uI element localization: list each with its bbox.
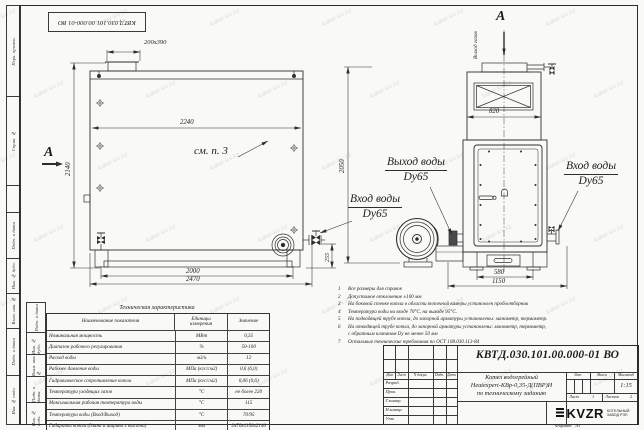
col-podp: Подп.: [433, 374, 446, 378]
row-value: 2470х1150х2140: [228, 421, 269, 430]
note-text: Все размеры для справок: [348, 286, 402, 292]
note-line: с обратным клапаном Dу не менее 50 мм: [338, 331, 552, 339]
scale-value: 1:15: [614, 383, 638, 389]
front-view: [449, 30, 559, 272]
table-row: Рабочее давление водыМПа (кгс/см2)0,6 (6…: [47, 364, 269, 375]
row-name: Рабочее давление воды: [47, 365, 176, 375]
dim-top-width: 820: [489, 109, 499, 116]
table-row: Температура воды (Вход/Выход)°С70/95: [47, 409, 269, 420]
note-text: с обратным клапаном Dу не менее 50 мм: [348, 331, 438, 337]
logo-caption2: ЗАВОД РЭП: [607, 413, 630, 417]
target-mark-icon: [96, 99, 298, 234]
dim-total-width: 1150: [492, 279, 505, 286]
dim-chimney: 200x390: [144, 40, 166, 47]
row-units: %: [176, 342, 229, 352]
note-text: На отводящей трубе котла, до запорной ар…: [348, 324, 546, 330]
table-row: Габариты котла (длина и ширина х высота)…: [47, 420, 269, 430]
tech-table: Наименование показателя Единицыизмерения…: [46, 313, 270, 430]
role-label: Утв.: [386, 417, 395, 421]
note-text: Допустимое отклонение ±100 мм: [348, 294, 422, 300]
row-value: 0,06 (0,6): [228, 376, 269, 386]
side-view: [84, 62, 325, 267]
water-out-line2: Dy65: [385, 172, 447, 184]
row-value: не более 220: [228, 387, 269, 397]
note-line: 1Все размеры для справок: [338, 286, 552, 294]
door-handle-icon: [479, 196, 496, 199]
note-number: 1: [338, 286, 348, 292]
valve-icon: [527, 63, 556, 75]
note-number: 7: [338, 339, 348, 345]
role-label: Разраб.: [386, 381, 400, 385]
row-name: Габариты котла (длина и ширина х высота): [47, 421, 176, 430]
hatched-panel: [474, 83, 533, 110]
water-in-left-label: Вход воды Dy65: [348, 194, 402, 220]
format-strip: Формат А3: [555, 424, 580, 429]
section-label-top: А: [496, 10, 505, 24]
row-value: 0,35: [228, 331, 269, 341]
water-in-right-line2: Dy65: [564, 176, 618, 188]
dim-front-height: 2050: [340, 159, 347, 173]
note-number: 3: [338, 301, 348, 307]
water-out-line1: Выход воды: [385, 157, 447, 171]
table-row: Диапазон рабочего регулирования%50-100: [47, 341, 269, 352]
water-in-left-line1: Вход воды: [348, 194, 402, 208]
water-in-right-line1: Вход воды: [564, 161, 618, 175]
table-row: Гидравлическое сопротивление котлаМПа (к…: [47, 375, 269, 386]
col-header-value: Значение: [228, 314, 269, 330]
boiler-door: [474, 145, 542, 246]
dim-pipe-height: 255: [325, 253, 331, 262]
table-row: Расход водым3/ч12: [47, 353, 269, 364]
sheets-value: 2: [630, 395, 632, 399]
dim-body-width: 2240: [180, 120, 194, 127]
row-units: МВт: [176, 331, 229, 341]
note-number: 5: [338, 316, 348, 322]
table-row: Номинальная мощностьМВт0,35: [47, 330, 269, 341]
note-line: 2Допустимое отклонение ±100 мм: [338, 294, 552, 302]
product-line3: по техническому заданию: [457, 391, 566, 397]
role-label: Н.контр.: [386, 408, 403, 412]
row-units: °С: [176, 399, 229, 409]
product-line2: Heatexpert-КВр-0,35-Д(ПВР)И: [457, 383, 566, 389]
water-out-label: Выход воды Dy65: [385, 157, 447, 183]
base-frame: [463, 252, 547, 270]
note-number: 4: [338, 309, 348, 315]
tech-table-title: Техническая характеристика: [46, 305, 268, 311]
row-name: Температура воды (Вход/Выход): [47, 410, 176, 420]
product-name: Котел водогрейный Heatexpert-КВр-0,35-Д(…: [457, 375, 566, 397]
row-value: 70/95: [228, 410, 269, 420]
col-header-name: Наименование показателя: [47, 314, 175, 330]
row-name: Максимальная рабочая температура воды: [47, 399, 176, 409]
note-text: Температура воды на входе 70°С, на выход…: [348, 309, 457, 315]
sheets-label: Листов: [605, 395, 619, 399]
row-units: °С: [176, 410, 229, 420]
tech-table-header: Наименование показателя Единицыизмерения…: [47, 314, 269, 330]
note-line: 5На подводящей трубе котла, до запорной …: [338, 316, 552, 324]
scale-label: Масштаб: [614, 374, 638, 378]
water-inlet-flange: [547, 226, 559, 244]
sheet-value: 1: [592, 395, 594, 399]
note-number: 6: [338, 324, 348, 330]
row-name: Расход воды: [47, 354, 176, 364]
role-label: Т.контр.: [386, 399, 402, 403]
note-text: На подводящей трубе котла, до запорной а…: [348, 316, 547, 322]
dim-legs-span: 2000: [186, 269, 200, 276]
flange-icon: [272, 234, 294, 256]
logo-bars-icon: [556, 408, 564, 418]
gas-outlet-label: Выход газов: [474, 31, 479, 59]
row-name: Диапазон рабочего регулирования: [47, 342, 176, 352]
row-units: м3/ч: [176, 354, 229, 364]
section-label-left: А: [44, 146, 53, 160]
row-units: °С: [176, 387, 229, 397]
door-bolts: [480, 151, 537, 243]
row-units: МПа (кгс/см2): [176, 376, 229, 386]
row-value: 12: [228, 354, 269, 364]
note-line: 3На боковой стенке котла в области топоч…: [338, 301, 552, 309]
see-note-label: см. п. 3: [194, 146, 228, 157]
table-row: Температура уходящих газов°Сне более 220: [47, 386, 269, 397]
col-list: Лист: [395, 374, 408, 378]
dim-base-span: 580: [494, 270, 504, 277]
water-in-right-label: Вход воды Dy65: [564, 161, 618, 187]
table-row: Максимальная рабочая температура воды°С1…: [47, 398, 269, 409]
dim-total-length: 2470: [186, 277, 200, 284]
drawing-sheet: kotel-kv.kzkotel-kv.kzkotel-kv.kzkotel-k…: [0, 0, 644, 430]
valve-icon: [303, 231, 325, 245]
row-units: мм: [176, 421, 229, 430]
sheet-label: Лист: [569, 395, 579, 399]
company-logo: KVZR КОТЕЛЬНЫЙ ЗАВОД РЭП: [547, 402, 638, 424]
note-text: На боковой стенке котла в области топочн…: [348, 301, 528, 307]
row-name: Гидравлическое сопротивление котла: [47, 376, 176, 386]
row-value: 115: [228, 399, 269, 409]
product-line1: Котел водогрейный: [457, 375, 566, 381]
col-data: Дата: [446, 374, 457, 378]
title-block: КВТД.030.101.00.000-01 ВО Изм Лист N док…: [383, 345, 639, 425]
row-units: МПа (кгс/см2): [176, 365, 229, 375]
note-number: 2: [338, 294, 348, 300]
col-ndoc: N докум.: [408, 374, 433, 378]
format-value: А3: [575, 423, 580, 428]
col-izm: Изм: [384, 374, 395, 378]
logo-text: KVZR: [567, 406, 604, 421]
door-latch-icon: [502, 189, 508, 196]
row-name: Температура уходящих газов: [47, 387, 176, 397]
lit-label: Лит.: [566, 374, 590, 378]
lifting-lug-icon: [97, 71, 295, 78]
row-value: 0,6 (6,0): [228, 365, 269, 375]
note-text: Остальные технические требования по ОСТ …: [348, 339, 479, 345]
format-label: Формат: [555, 423, 572, 428]
col-header-units: Единицыизмерения: [175, 314, 228, 330]
water-in-left-line2: Dy65: [348, 209, 402, 221]
doc-number: КВТД.030.101.00.000-01 ВО: [457, 350, 638, 362]
dim-side-height: 2140: [66, 162, 73, 176]
role-label: Пров.: [386, 390, 397, 394]
mass-label: Масса: [590, 374, 614, 378]
valve-icon: [97, 233, 105, 250]
row-value: 50-100: [228, 342, 269, 352]
notes-block: 1Все размеры для справок 2Допустимое отк…: [338, 286, 552, 346]
row-name: Номинальная мощность: [47, 331, 176, 341]
